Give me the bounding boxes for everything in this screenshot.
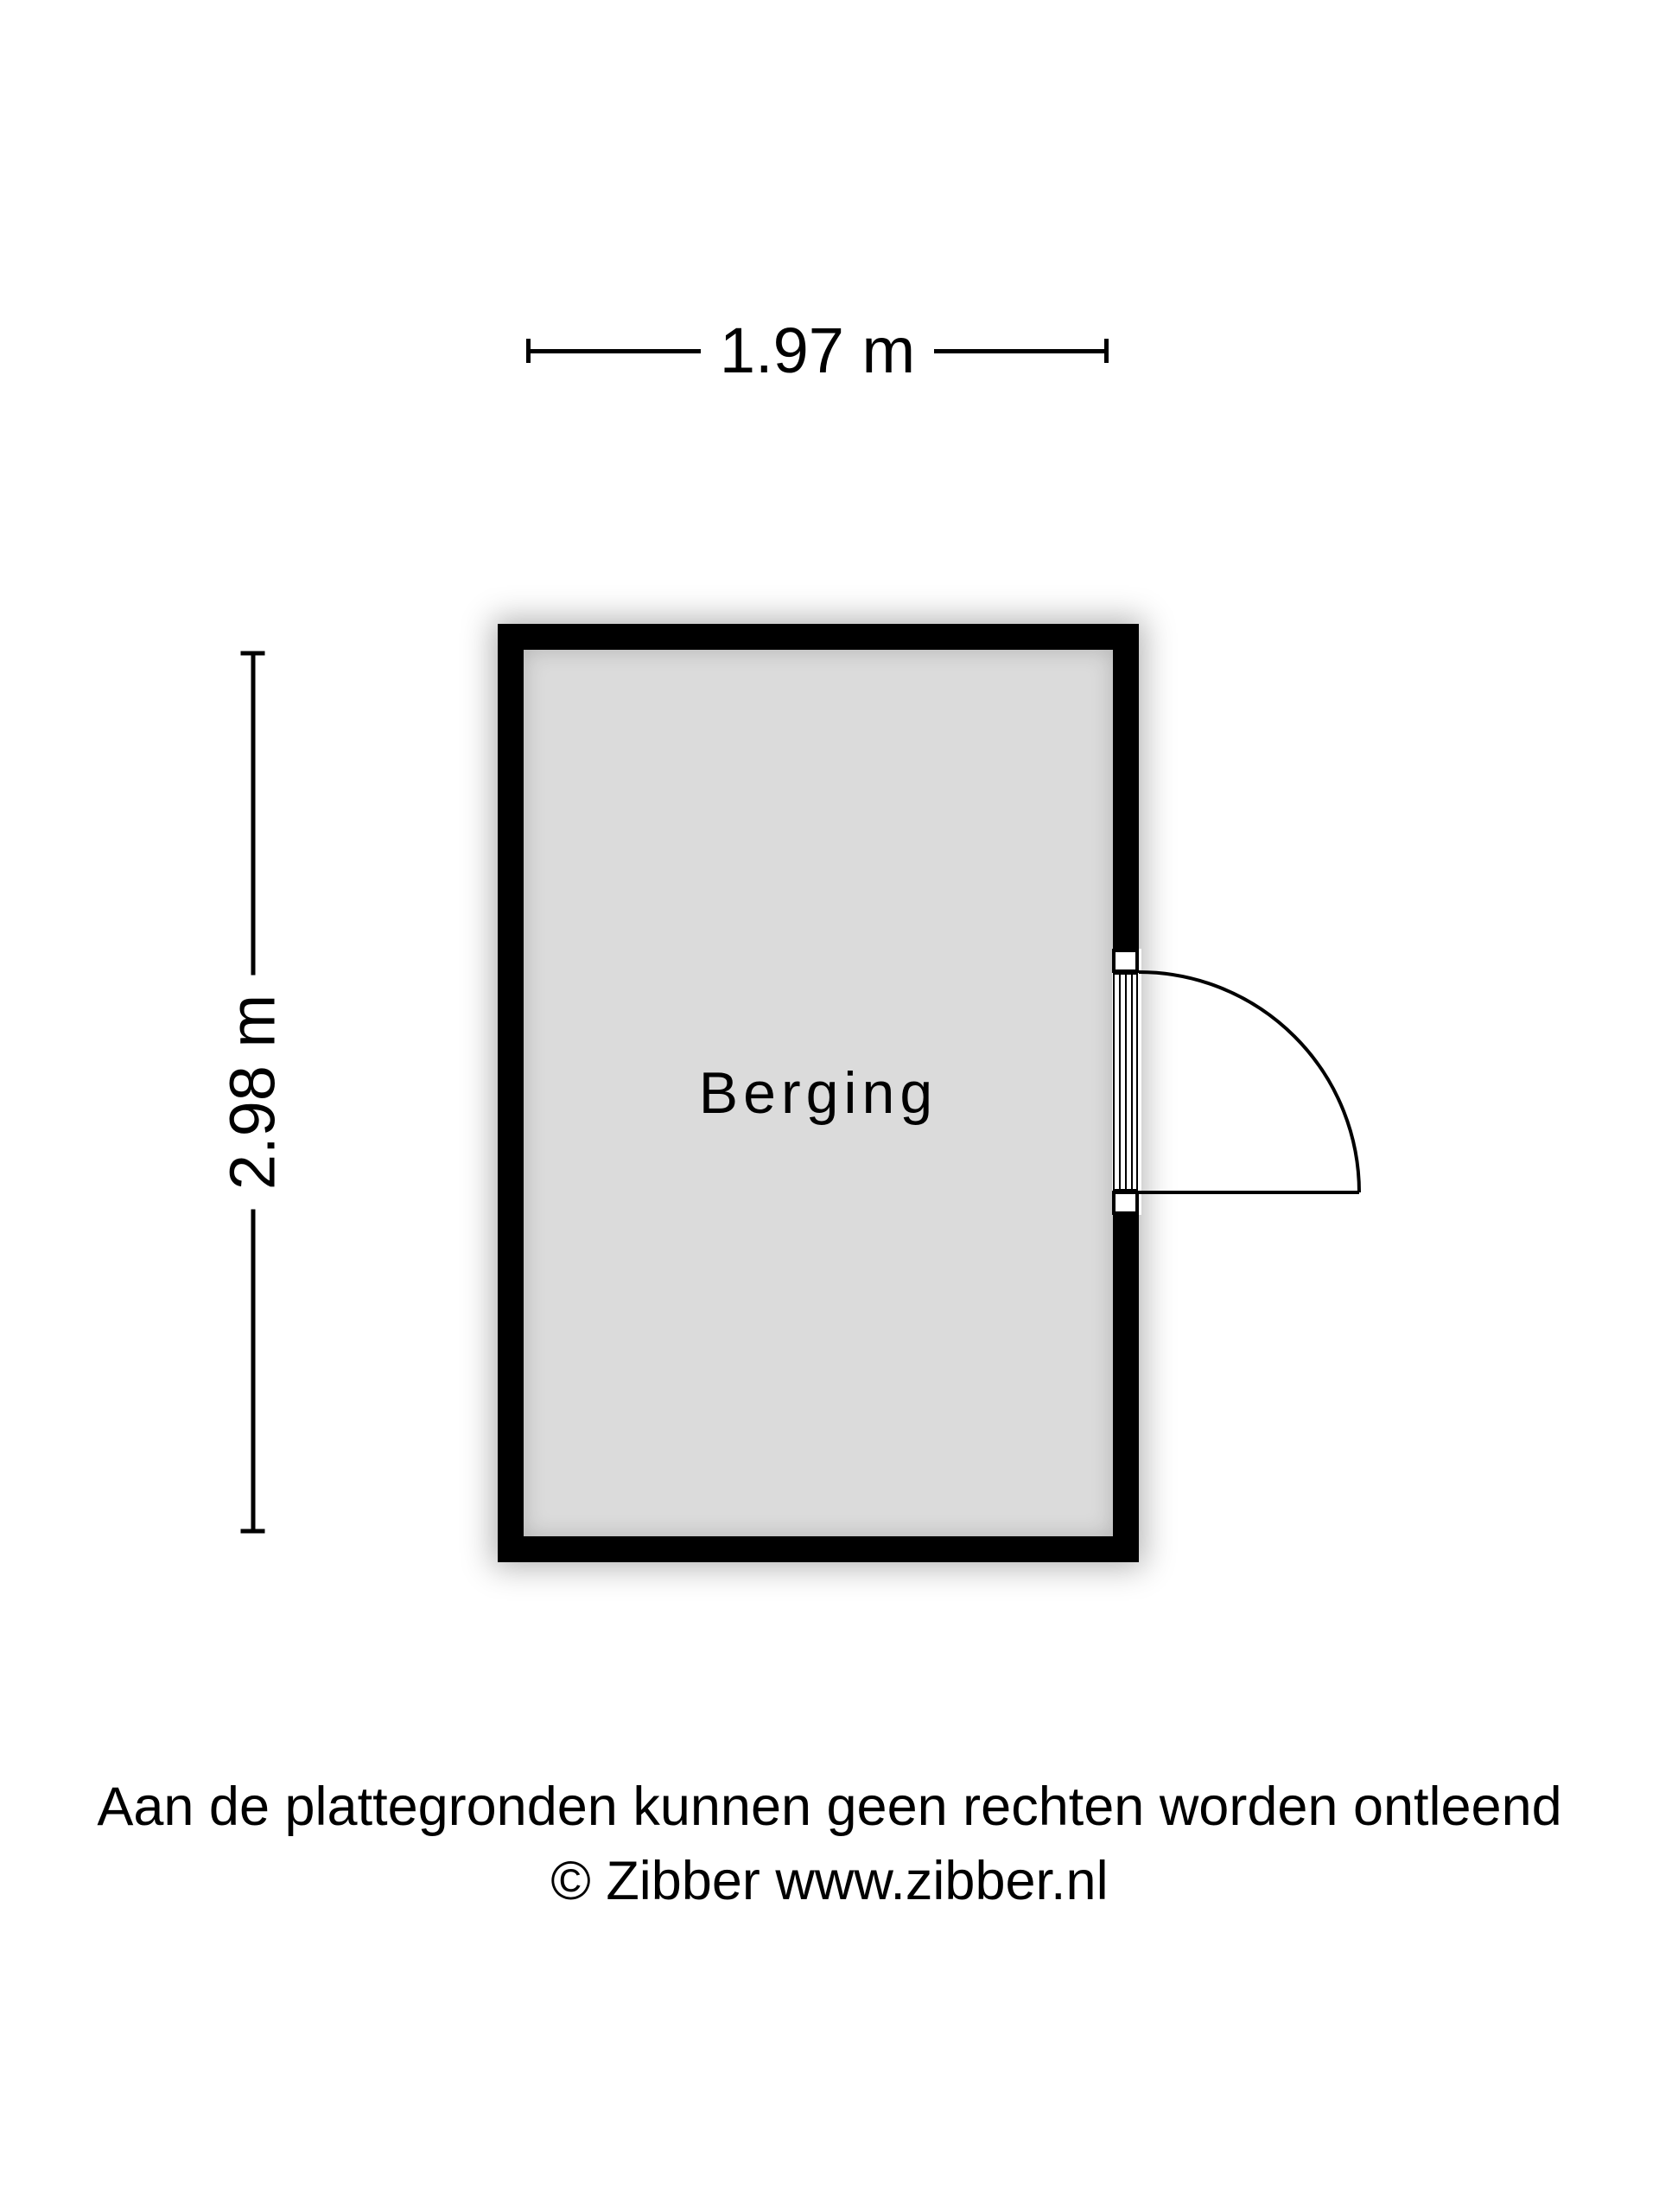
copyright-line: © Zibber www.zibber.nl	[0, 1844, 1659, 1918]
disclaimer-line: Aan de plattegronden kunnen geen rechten…	[0, 1770, 1659, 1844]
dimension-height-label: 2.98 m	[232, 976, 275, 1209]
footer: Aan de plattegronden kunnen geen rechten…	[0, 1770, 1659, 1918]
dimension-tick	[241, 651, 265, 655]
dimension-tick	[241, 1529, 265, 1534]
door-jamb-top	[1112, 949, 1139, 973]
floor-plan-page: Berging 1.97 m 2.98 m Aan de plattegrond…	[0, 0, 1659, 2212]
door-swing-icon	[1137, 969, 1363, 1195]
dimension-line	[531, 349, 701, 353]
dimension-width: 1.97 m	[526, 329, 1109, 372]
dimension-line	[251, 1209, 255, 1529]
room-floor	[524, 650, 1113, 1536]
door-jamb-bottom	[1112, 1191, 1139, 1215]
dimension-height: 2.98 m	[232, 652, 275, 1534]
dimension-tick	[1104, 339, 1109, 363]
dimension-width-label: 1.97 m	[701, 329, 934, 372]
dimension-line	[251, 655, 255, 975]
door-frame-icon	[1113, 973, 1138, 1191]
dimension-line	[934, 349, 1104, 353]
room-walls	[498, 624, 1139, 1562]
